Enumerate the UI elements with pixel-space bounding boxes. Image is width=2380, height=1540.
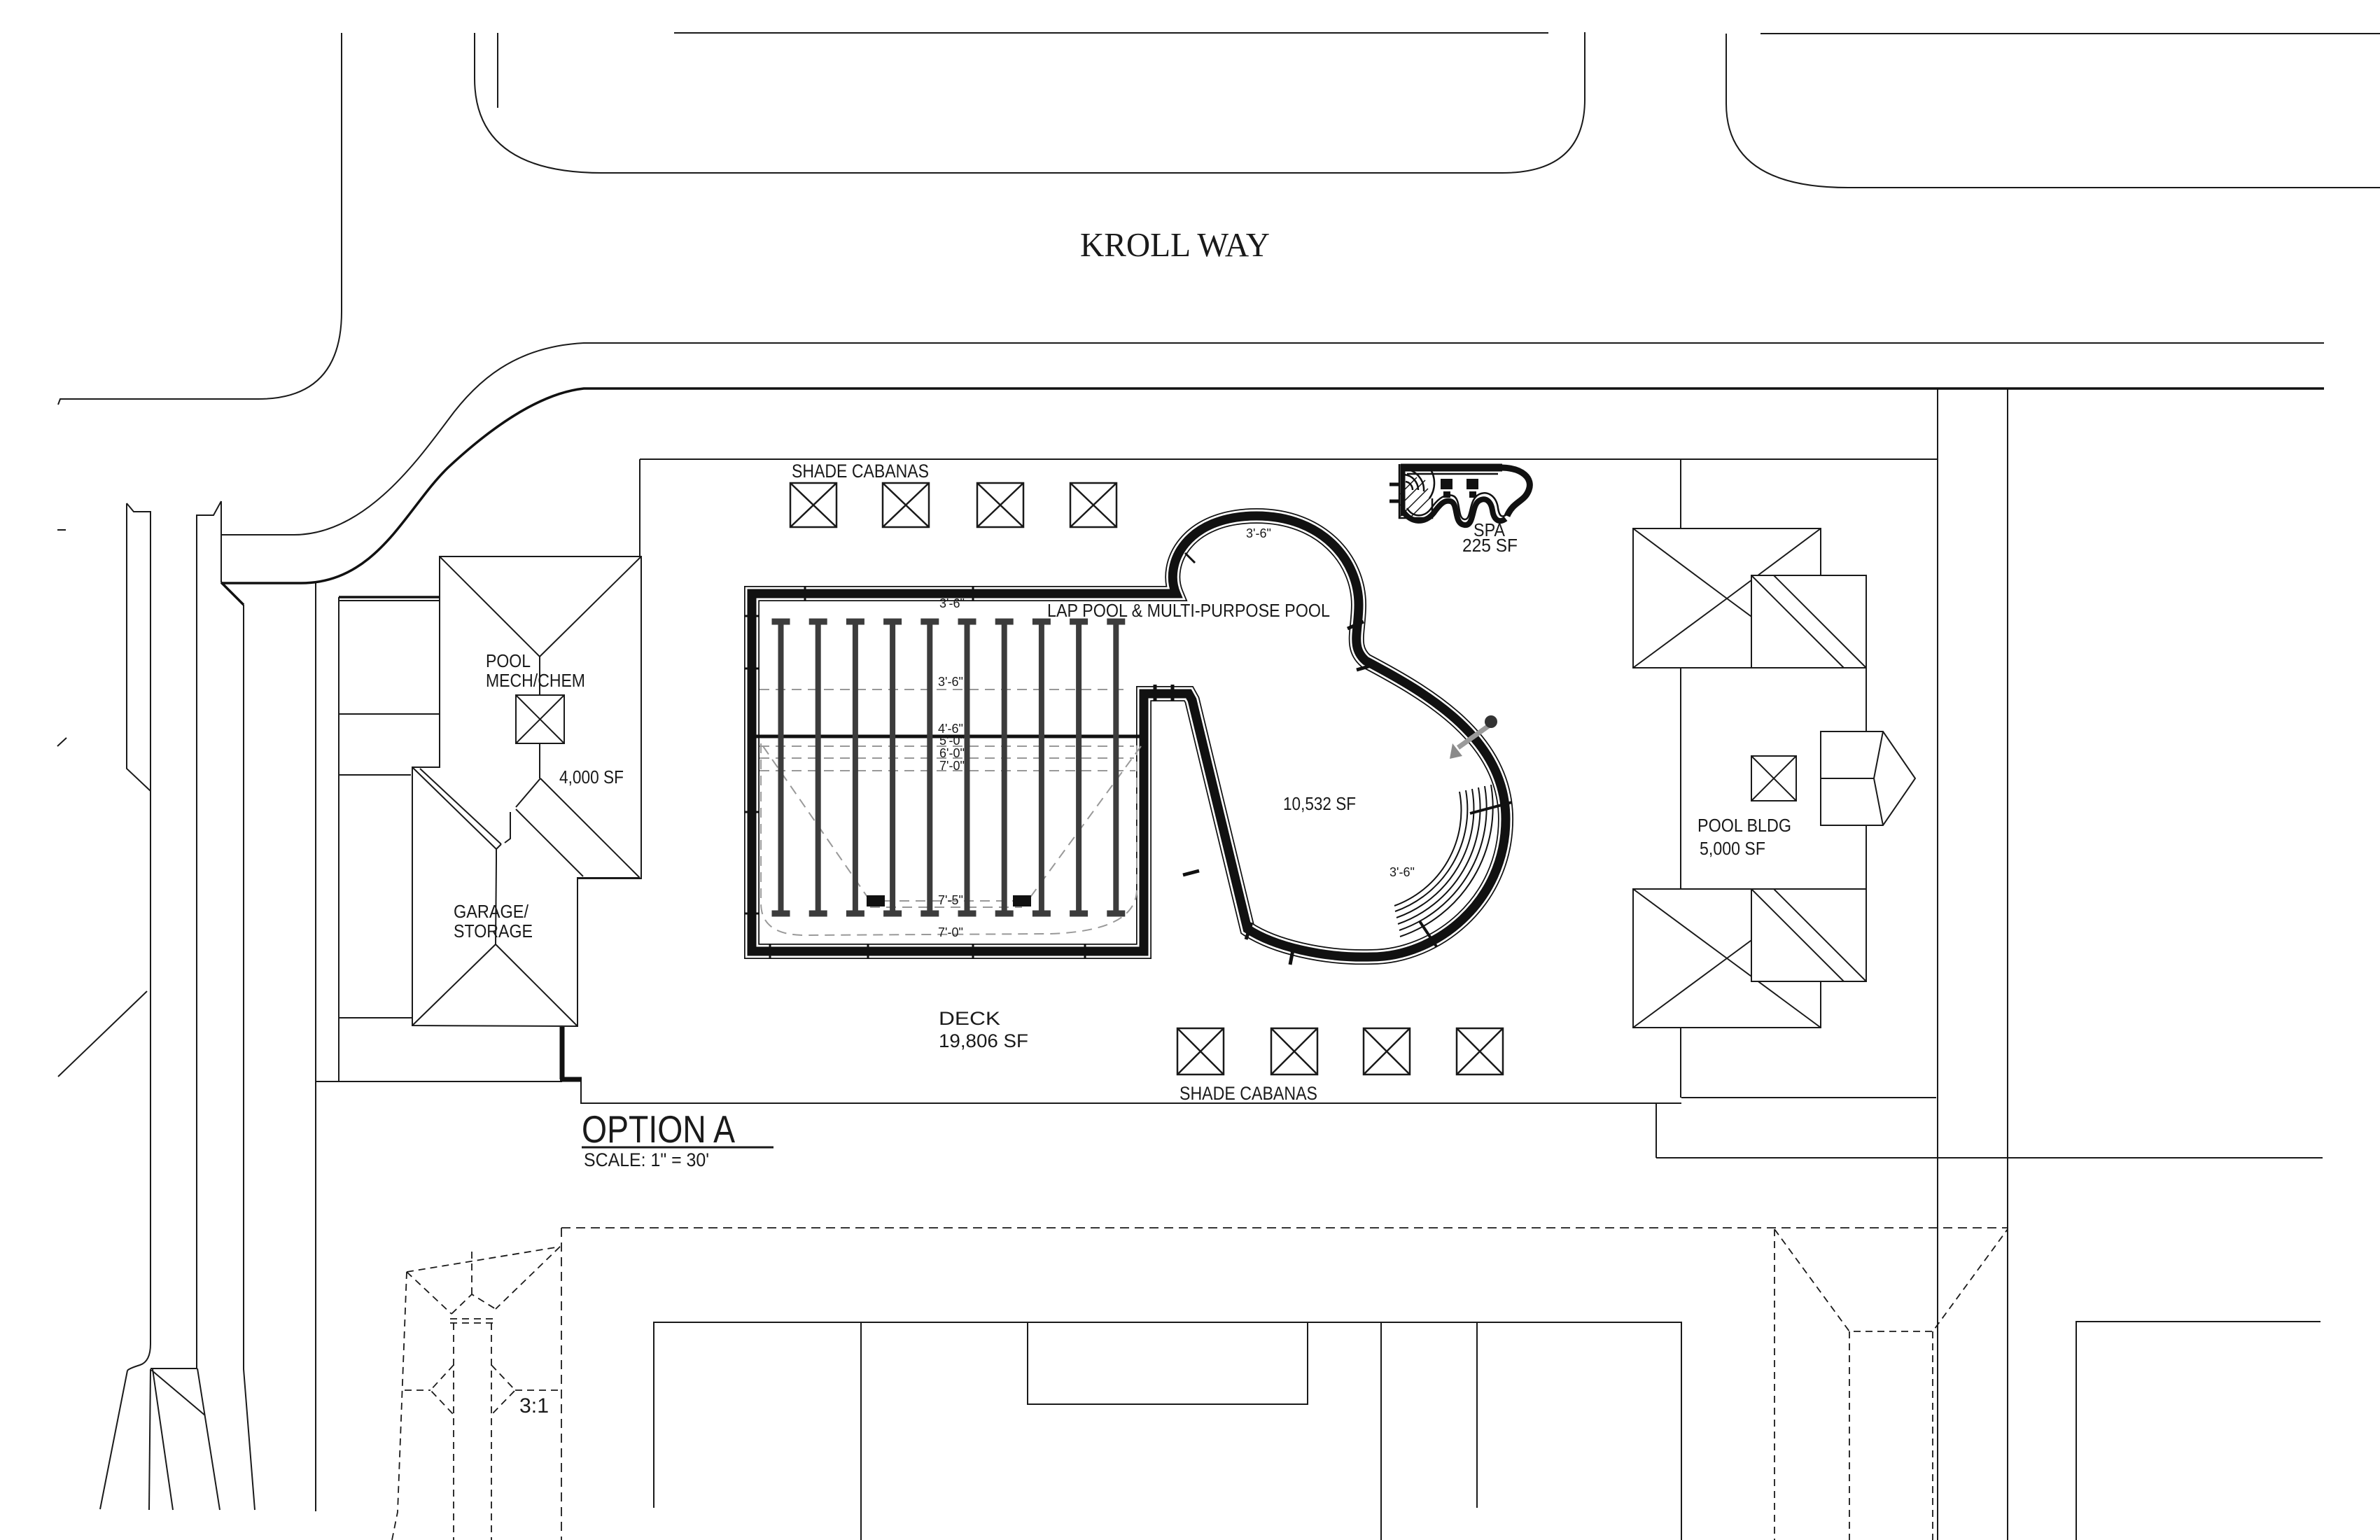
svg-text:225 SF: 225 SF <box>1462 535 1518 556</box>
svg-text:KROLL WAY: KROLL WAY <box>1080 225 1270 264</box>
svg-text:5,000 SF: 5,000 SF <box>1700 838 1765 859</box>
svg-text:SHADE CABANAS: SHADE CABANAS <box>792 461 929 482</box>
svg-text:SHADE CABANAS: SHADE CABANAS <box>1179 1083 1317 1104</box>
svg-text:DECK: DECK <box>939 1008 1000 1029</box>
svg-text:7'-5": 7'-5" <box>938 893 963 907</box>
svg-text:6'-0": 6'-0" <box>939 746 965 760</box>
svg-text:7'-0": 7'-0" <box>938 925 963 939</box>
svg-text:3'-6": 3'-6" <box>1246 526 1271 540</box>
svg-text:19,806 SF: 19,806 SF <box>939 1030 1028 1051</box>
svg-text:POOL BLDG: POOL BLDG <box>1697 815 1791 836</box>
svg-text:10,532 SF: 10,532 SF <box>1283 793 1356 814</box>
svg-text:LAP POOL & MULTI-PURPOSE POOL: LAP POOL & MULTI-PURPOSE POOL <box>1047 600 1330 621</box>
svg-text:MECH/CHEM: MECH/CHEM <box>486 670 585 691</box>
svg-text:4,000 SF: 4,000 SF <box>559 766 624 787</box>
svg-text:7'-0": 7'-0" <box>939 759 965 773</box>
svg-text:GARAGE/: GARAGE/ <box>454 901 529 922</box>
svg-text:3'-6": 3'-6" <box>1389 865 1415 879</box>
svg-text:SCALE: 1" = 30': SCALE: 1" = 30' <box>584 1149 709 1170</box>
svg-text:POOL: POOL <box>486 650 531 671</box>
svg-text:3'-6": 3'-6" <box>939 596 965 610</box>
svg-text:3'-6": 3'-6" <box>938 675 963 689</box>
svg-text:OPTION A: OPTION A <box>582 1107 735 1151</box>
svg-text:5'-0": 5'-0" <box>939 734 965 748</box>
svg-text:STORAGE: STORAGE <box>454 920 533 941</box>
svg-text:3:1: 3:1 <box>519 1394 549 1417</box>
